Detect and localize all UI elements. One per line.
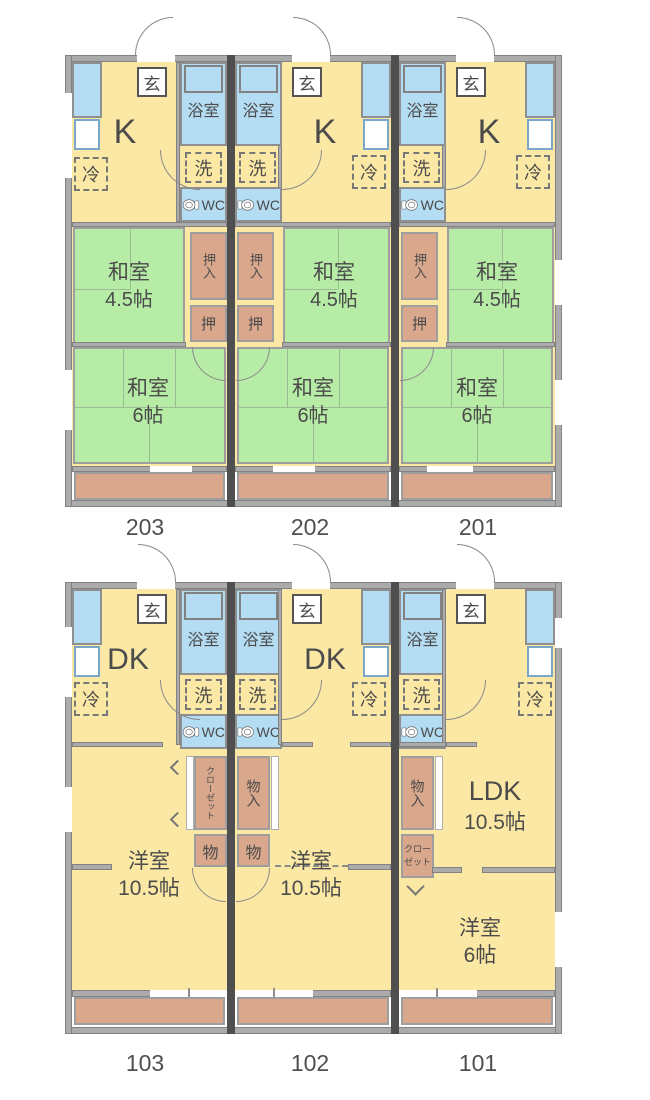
- room-size: 6帖: [132, 403, 163, 429]
- entrance-door-arc: [457, 544, 495, 582]
- closet-label-line2: ゼット: [404, 856, 431, 869]
- room-size: 4.5帖: [310, 287, 358, 313]
- toilet-icon: [182, 722, 200, 742]
- terrace: [237, 997, 389, 1025]
- entrance-door-arc: [457, 17, 495, 55]
- bath-label: 浴室: [180, 628, 227, 648]
- tatami-4_5-label: 和室 4.5帖: [283, 255, 385, 317]
- inner-wall: [282, 742, 313, 747]
- window-gap: [555, 912, 562, 967]
- toilet-icon: [237, 722, 255, 742]
- wc-room: WC: [399, 187, 446, 222]
- inner-wall: [399, 742, 446, 747]
- window-gap: [65, 787, 72, 832]
- outer-wall-bottom: [65, 500, 562, 507]
- window-gap: [65, 370, 72, 430]
- bath-label: 浴室: [180, 99, 227, 119]
- closet: クロー ゼット: [401, 834, 434, 878]
- room-size: 10.5帖: [464, 809, 526, 836]
- balcony: [237, 472, 389, 500]
- unit-number-label: 101: [428, 1048, 528, 1078]
- partition-wall: [432, 867, 462, 873]
- window-gap: [65, 627, 72, 697]
- closet-oshi: 押: [401, 305, 438, 342]
- room-name: 和室: [292, 375, 334, 402]
- storage-tall: 物入: [237, 756, 270, 830]
- kitchen-room-label: K: [454, 112, 524, 152]
- western-room-label: 洋室 10.5帖: [99, 842, 199, 908]
- inner-wall: [446, 342, 555, 347]
- dk-room-label: DK: [78, 640, 178, 680]
- unit-number-label: 201: [428, 512, 528, 542]
- closet-oshi: 押: [190, 305, 227, 342]
- wc-label: WC: [257, 724, 280, 740]
- tatami-4_5-label: 和室 4.5帖: [446, 255, 548, 317]
- room-name: 洋室: [290, 848, 332, 875]
- tatami-6-label: 和室 6帖: [436, 371, 518, 433]
- room-name: 和室: [108, 259, 150, 286]
- bath-label: 浴室: [399, 99, 446, 119]
- room-size: 6帖: [461, 403, 492, 429]
- inner-wall: [72, 222, 227, 227]
- room-name: 和室: [127, 375, 169, 402]
- wc-label: WC: [257, 197, 280, 213]
- closet-oshiire: 押入: [401, 232, 438, 300]
- window-gap: [65, 93, 72, 178]
- inner-wall: [350, 742, 391, 747]
- bath-window: [239, 592, 278, 620]
- inner-wall: [72, 342, 186, 347]
- window-gap: [555, 618, 562, 648]
- fridge-box: 冷: [518, 682, 552, 716]
- bath-window: [184, 65, 223, 93]
- floor-2-plan: 浴室 洗 WC 玄 冷 K 押入 押 和室 4.5帖 和室 6帖: [65, 55, 562, 507]
- balcony: [74, 472, 225, 500]
- room-name: 洋室: [459, 915, 501, 942]
- laundry-box: 洗: [239, 679, 276, 710]
- genkan-box: 玄: [137, 594, 167, 624]
- ldk-label: LDK 10.5帖: [445, 770, 545, 840]
- kitchen-room-label: K: [290, 112, 360, 152]
- wc-room: WC: [235, 714, 282, 749]
- closet-door-track: [186, 756, 194, 830]
- entrance-door-gap: [137, 582, 175, 589]
- unit-number-label: 102: [260, 1048, 360, 1078]
- kitchen-counter: [72, 589, 102, 645]
- unit-divider-wall: [227, 582, 235, 1034]
- unit-divider-wall: [391, 55, 399, 507]
- wc-room: WC: [180, 714, 227, 749]
- fridge-box: 冷: [352, 682, 386, 716]
- inner-wall: [235, 222, 391, 227]
- room-size: 10.5帖: [118, 875, 180, 902]
- partition-wall: [482, 867, 555, 873]
- kitchen-counter: [361, 589, 391, 645]
- kitchen-counter: [72, 62, 102, 118]
- kitchen-sink-box: [527, 119, 553, 150]
- bath-window: [403, 592, 442, 620]
- bath-label: 浴室: [399, 628, 446, 648]
- inner-wall: [278, 589, 282, 745]
- unit-number-label: 202: [260, 512, 360, 542]
- inner-wall: [282, 342, 391, 347]
- bath-window: [403, 65, 442, 93]
- terrace: [74, 997, 225, 1025]
- unit-number-label: 203: [95, 512, 195, 542]
- bath-window: [184, 592, 223, 620]
- wc-room: WC: [180, 187, 227, 222]
- kitchen-sink-box: [363, 646, 389, 677]
- floor-1-plan: 玄 冷 DK 浴室 洗 WC クローゼット 物 洋室 10.5帖: [65, 582, 562, 1034]
- kitchen-counter: [525, 589, 555, 645]
- fridge-box: 冷: [516, 155, 550, 189]
- room-size: 6帖: [297, 403, 328, 429]
- inner-wall: [399, 222, 555, 227]
- room-name: 洋室: [128, 848, 170, 875]
- closet-door-track: [435, 756, 443, 830]
- bath-label: 浴室: [235, 99, 282, 119]
- laundry-box: 洗: [403, 679, 440, 710]
- kitchen-sink-box: [363, 119, 389, 150]
- bath-label: 浴室: [235, 628, 282, 648]
- kitchen-counter: [525, 62, 555, 118]
- unit-number-label: 103: [95, 1048, 195, 1078]
- toilet-icon: [182, 195, 200, 215]
- bath-window: [239, 65, 278, 93]
- closet-door-track: [271, 756, 279, 830]
- toilet-icon: [237, 195, 255, 215]
- inner-wall: [72, 742, 163, 747]
- genkan-box: 玄: [456, 67, 486, 97]
- closet-oshiire: 押入: [237, 232, 274, 300]
- closet: クローゼット: [194, 756, 227, 830]
- entrance-door-gap: [456, 55, 494, 62]
- storage-tall: 物入: [401, 756, 434, 830]
- entrance-door-gap: [456, 582, 494, 589]
- kitchen-counter: [361, 62, 391, 118]
- outer-wall-bottom: [65, 1027, 562, 1034]
- fridge-box: 冷: [74, 157, 108, 191]
- laundry-box: 洗: [403, 152, 440, 183]
- wc-label: WC: [202, 724, 225, 740]
- western-room-label: 洋室 6帖: [430, 910, 530, 974]
- tatami-4_5-label: 和室 4.5帖: [78, 255, 180, 317]
- genkan-box: 玄: [292, 594, 322, 624]
- room-size: 4.5帖: [105, 287, 153, 313]
- toilet-icon: [401, 722, 419, 742]
- fridge-box: 冷: [352, 155, 386, 189]
- room-name: LDK: [469, 774, 522, 809]
- dk-room-label: DK: [285, 640, 365, 680]
- closet-oshi: 押: [237, 305, 274, 342]
- entrance-door-gap: [292, 582, 330, 589]
- unit-divider-wall: [391, 582, 399, 1034]
- floorplan-canvas: 浴室 洗 WC 玄 冷 K 押入 押 和室 4.5帖 和室 6帖: [0, 0, 650, 1100]
- room-name: 和室: [476, 259, 518, 286]
- kitchen-room-label: K: [90, 112, 160, 152]
- unit-divider-wall: [227, 55, 235, 507]
- genkan-box: 玄: [456, 594, 486, 624]
- entrance-door-arc: [293, 17, 331, 55]
- entrance-door-arc: [135, 17, 173, 55]
- room-size: 6帖: [464, 942, 497, 969]
- balcony: [401, 472, 553, 500]
- laundry-box: 洗: [239, 152, 276, 183]
- wc-room: WC: [235, 187, 282, 222]
- genkan-box: 玄: [292, 67, 322, 97]
- closet-label-line1: クロー: [404, 843, 431, 856]
- entrance-door-gap: [292, 55, 330, 62]
- inner-wall: [442, 589, 446, 745]
- closet-oshiire: 押入: [190, 232, 227, 300]
- toilet-icon: [401, 195, 419, 215]
- tatami-6-label: 和室 6帖: [107, 371, 189, 433]
- genkan-box: 玄: [137, 67, 167, 97]
- entrance-door-arc: [138, 544, 176, 582]
- window-gap: [555, 380, 562, 425]
- wc-label: WC: [421, 724, 444, 740]
- room-size: 4.5帖: [473, 287, 521, 313]
- fridge-box: 冷: [74, 682, 108, 716]
- entrance-door-arc: [293, 544, 331, 582]
- room-size: 10.5帖: [280, 875, 342, 902]
- terrace: [401, 997, 553, 1025]
- room-name: 和室: [456, 375, 498, 402]
- tatami-6-label: 和室 6帖: [272, 371, 354, 433]
- western-room-label: 洋室 10.5帖: [261, 842, 361, 908]
- entrance-door-gap: [137, 55, 175, 62]
- kitchen-sink-box: [527, 646, 553, 677]
- wc-label: WC: [421, 197, 444, 213]
- window-gap: [555, 260, 562, 305]
- inner-wall: [446, 742, 477, 747]
- wc-label: WC: [202, 197, 225, 213]
- room-name: 和室: [313, 259, 355, 286]
